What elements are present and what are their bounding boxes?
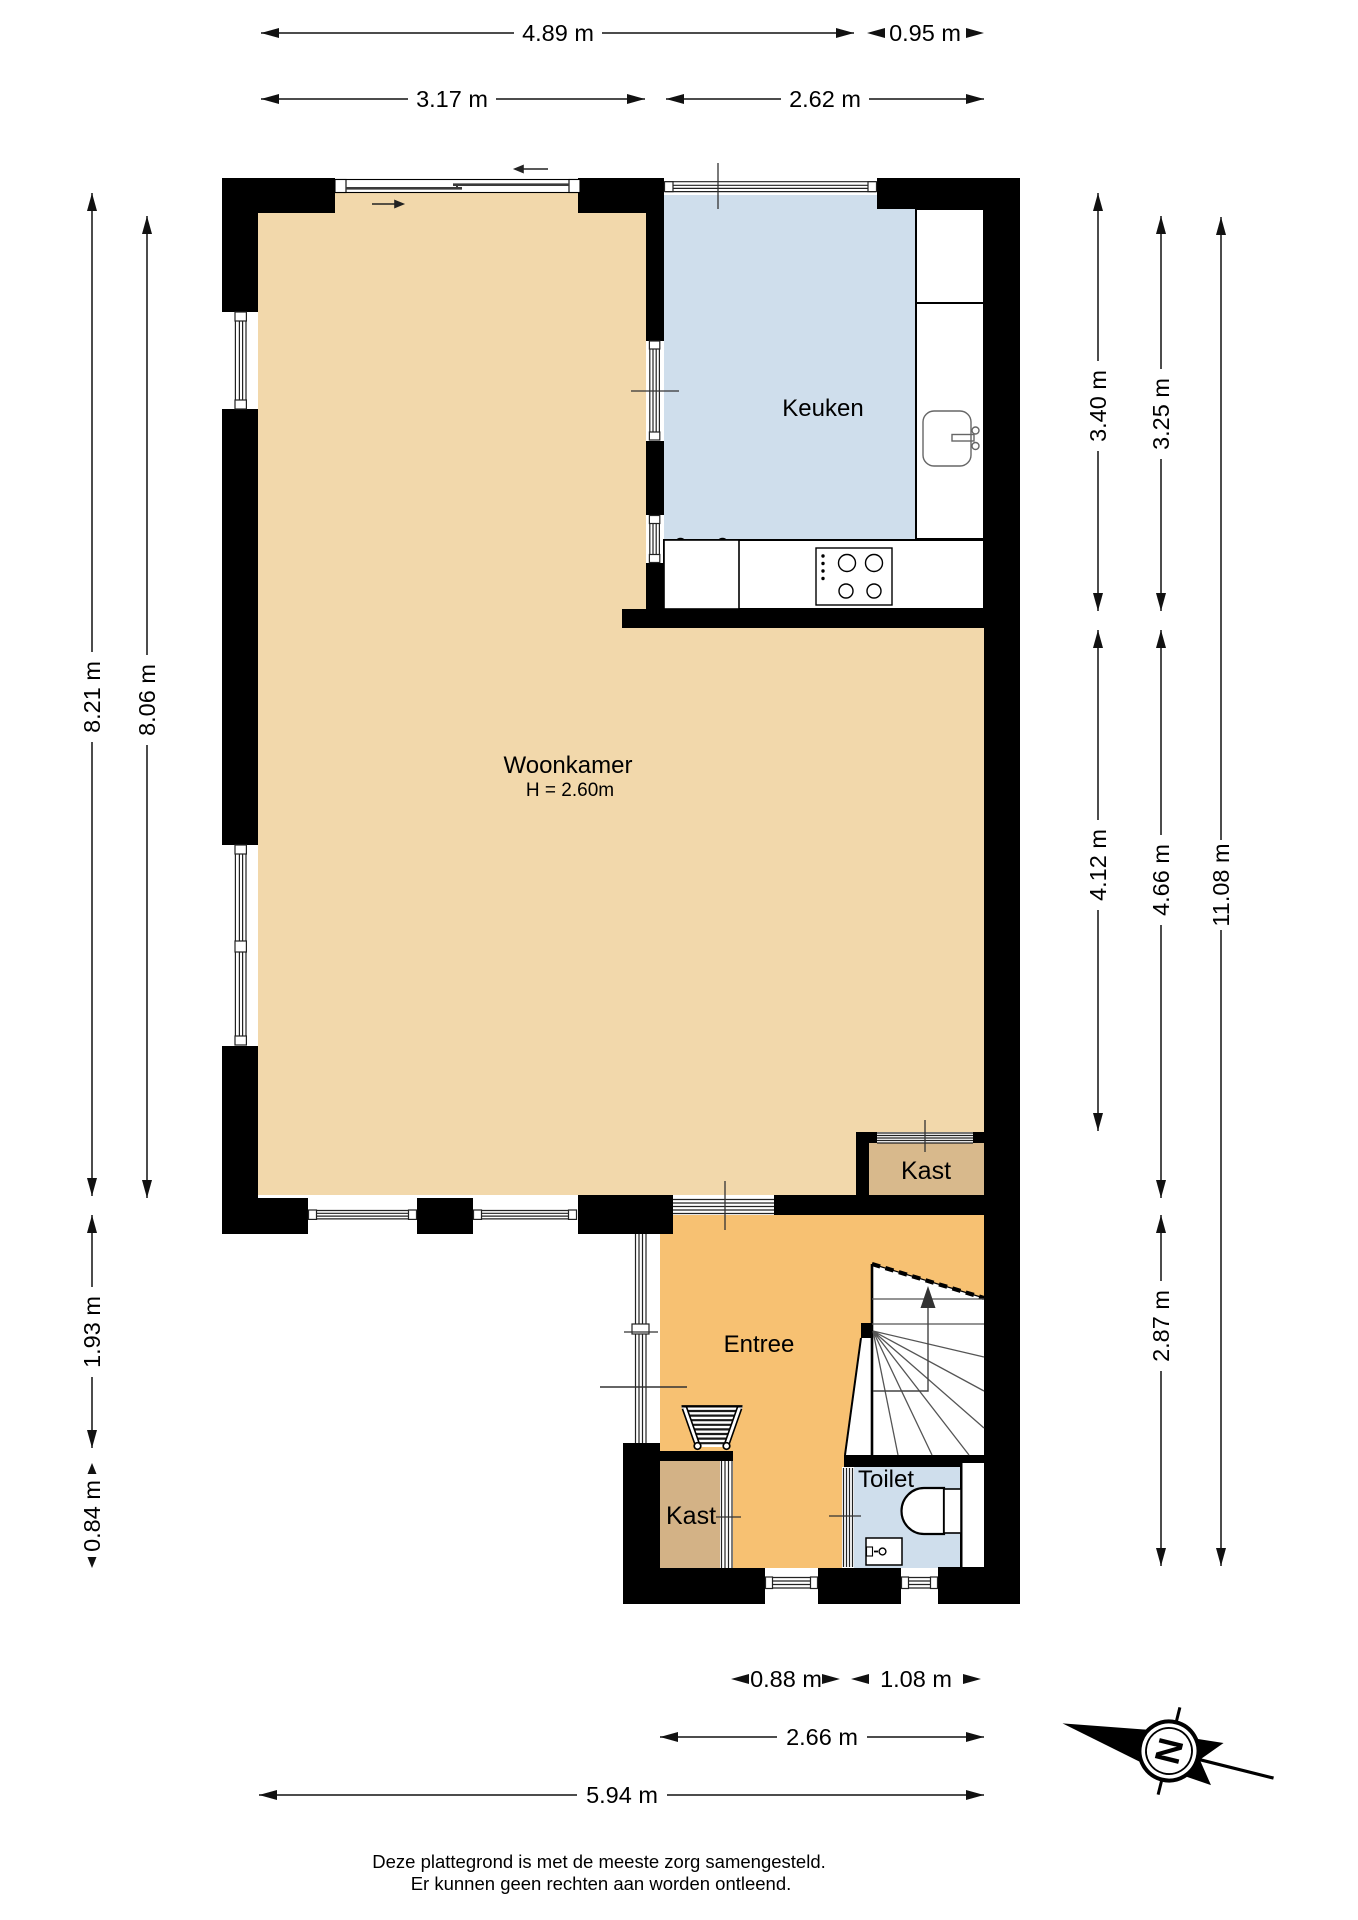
svg-text:H = 2.60m: H = 2.60m <box>526 780 614 801</box>
svg-text:Entree: Entree <box>724 1331 795 1358</box>
svg-text:2.66 m: 2.66 m <box>786 1724 858 1750</box>
svg-text:3.25 m: 3.25 m <box>1148 378 1174 450</box>
svg-text:3.17 m: 3.17 m <box>416 86 488 112</box>
svg-text:1.93 m: 1.93 m <box>79 1296 105 1368</box>
svg-text:Kast: Kast <box>666 1502 716 1530</box>
svg-text:4.66 m: 4.66 m <box>1148 844 1174 916</box>
svg-text:Woonkamer: Woonkamer <box>504 752 633 779</box>
svg-text:Keuken: Keuken <box>782 395 863 422</box>
svg-text:2.87 m: 2.87 m <box>1148 1290 1174 1362</box>
svg-text:0.84 m: 0.84 m <box>79 1480 105 1552</box>
svg-text:0.88 m: 0.88 m <box>750 1666 822 1692</box>
svg-text:0.95 m: 0.95 m <box>889 20 961 46</box>
svg-text:1.08 m: 1.08 m <box>880 1666 952 1692</box>
svg-text:Kast: Kast <box>901 1157 951 1185</box>
svg-text:4.12 m: 4.12 m <box>1085 829 1111 901</box>
svg-text:8.21 m: 8.21 m <box>79 661 105 733</box>
svg-text:4.89 m: 4.89 m <box>522 20 594 46</box>
svg-text:11.08 m: 11.08 m <box>1208 843 1234 926</box>
svg-text:Toilet: Toilet <box>858 1466 914 1493</box>
svg-text:8.06 m: 8.06 m <box>134 664 160 736</box>
svg-text:3.40 m: 3.40 m <box>1085 370 1111 442</box>
svg-text:2.62 m: 2.62 m <box>789 86 861 112</box>
svg-text:Deze plattegrond is met de mee: Deze plattegrond is met de meeste zorg s… <box>372 1851 826 1872</box>
svg-text:5.94 m: 5.94 m <box>586 1782 658 1808</box>
svg-text:Er kunnen geen rechten aan wor: Er kunnen geen rechten aan worden ontlee… <box>411 1873 792 1894</box>
